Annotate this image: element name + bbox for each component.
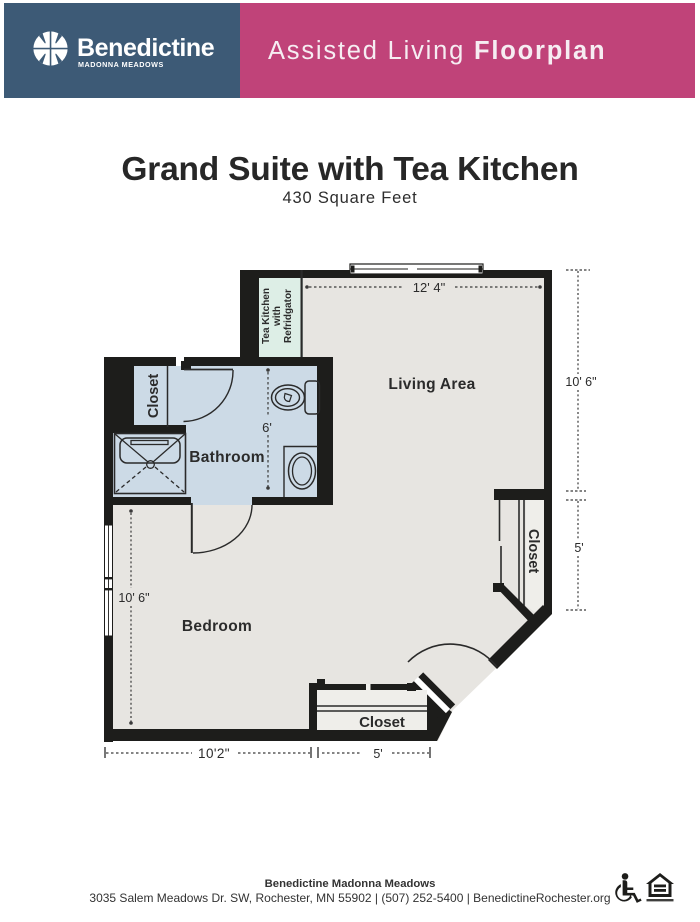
svg-text:12' 4": 12' 4": [413, 280, 446, 295]
svg-text:Refridgator: Refridgator: [283, 289, 294, 343]
svg-text:Living Area: Living Area: [388, 376, 475, 393]
svg-text:Bedroom: Bedroom: [182, 618, 252, 635]
svg-text:Closet: Closet: [146, 374, 162, 418]
svg-text:5': 5': [574, 541, 583, 555]
svg-text:10'2": 10'2": [198, 746, 230, 761]
svg-text:Closet: Closet: [525, 529, 541, 573]
svg-text:Tea Kitchen: Tea Kitchen: [261, 288, 272, 344]
svg-text:10' 6": 10' 6": [118, 591, 149, 605]
svg-text:6': 6': [262, 420, 272, 435]
svg-text:10' 6": 10' 6": [565, 375, 596, 389]
svg-text:Bathroom: Bathroom: [189, 449, 265, 466]
svg-text:with: with: [272, 306, 283, 327]
svg-text:5': 5': [373, 747, 382, 761]
svg-text:Closet: Closet: [359, 714, 405, 731]
